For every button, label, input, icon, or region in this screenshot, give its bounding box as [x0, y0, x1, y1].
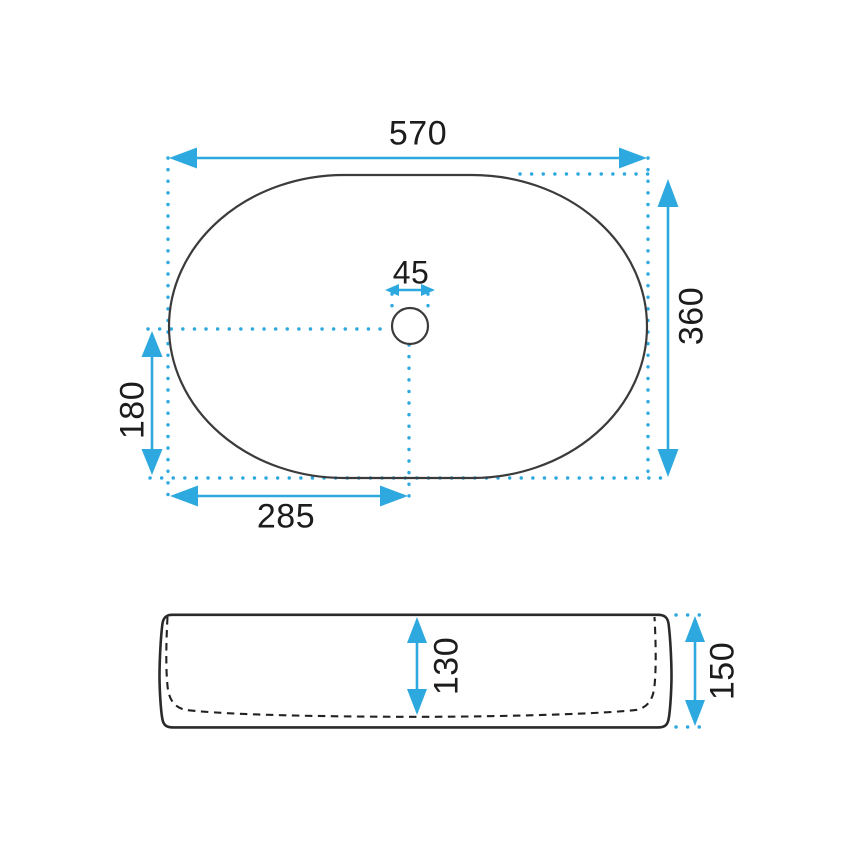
arrowhead-down-icon — [142, 449, 163, 475]
top-width-label: 570 — [389, 115, 447, 154]
outer-height-dimension-arrow — [685, 616, 705, 726]
top-view — [142, 148, 679, 507]
arrowhead-right-icon — [619, 148, 647, 169]
arrowhead-down-icon — [658, 449, 679, 477]
technical-drawing-canvas: 570 360 45 180 285 130 150 — [0, 0, 868, 868]
drain-offset-width-label: 285 — [257, 498, 315, 537]
basin-inner-dashed-line — [166, 617, 655, 717]
inner-height-dimension-arrow — [407, 617, 427, 715]
drain-offset-depth-label: 180 — [114, 381, 153, 439]
arrowhead-down-icon — [407, 689, 427, 715]
arrowhead-left-icon — [170, 486, 198, 507]
side-inner-height-label: 130 — [428, 637, 467, 695]
side-outer-height-label: 150 — [704, 642, 743, 700]
arrowhead-up-icon — [685, 616, 705, 642]
basin-outline-top — [169, 175, 647, 478]
arrowhead-up-icon — [142, 331, 163, 357]
drain-hole — [392, 308, 428, 344]
arrowhead-right-icon — [380, 486, 408, 507]
arrowhead-up-icon — [407, 617, 427, 643]
arrowhead-up-icon — [658, 179, 679, 207]
arrowhead-down-icon — [685, 700, 705, 726]
top-depth-label: 360 — [673, 287, 712, 345]
arrowhead-left-icon — [169, 148, 197, 169]
drain-diameter-label: 45 — [393, 255, 430, 292]
